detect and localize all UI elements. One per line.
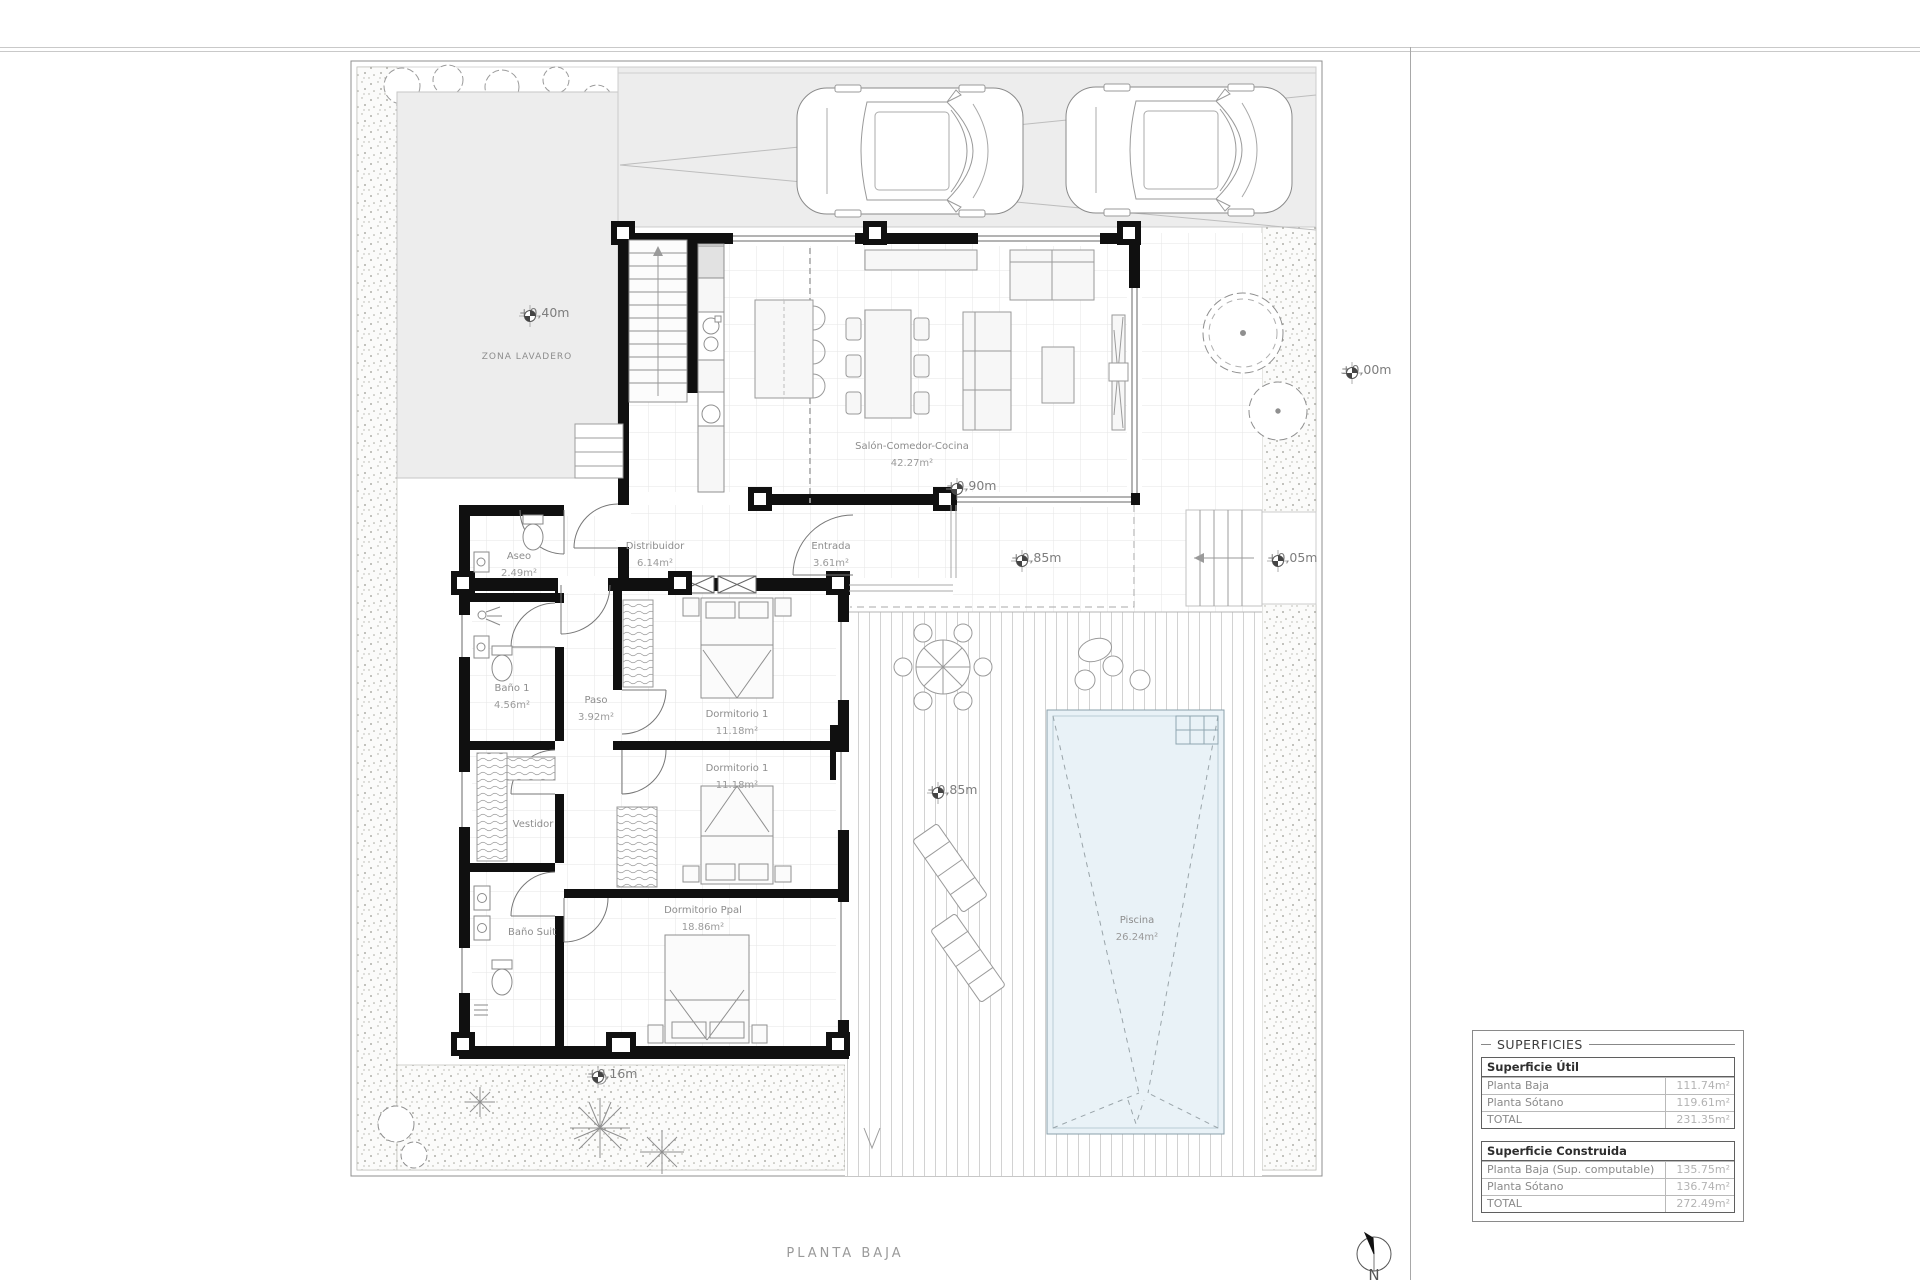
surfaces-title-text: SUPERFICIES [1497, 1037, 1583, 1052]
surfaces-panel: SUPERFICIES Superficie Útil Planta Baja … [1472, 1030, 1744, 1222]
level-icon [1341, 362, 1363, 384]
table-row: Planta Sótano 136.74m² [1482, 1178, 1734, 1195]
table-header: Superficie Construida [1482, 1142, 1734, 1161]
bed-principal [648, 935, 767, 1043]
room-label-zona-lavadero: ZONA LAVADERO [482, 352, 573, 362]
carport [618, 67, 1316, 230]
north-label: N [1368, 1266, 1379, 1280]
car-1 [797, 85, 1023, 217]
room-label-paso: Paso3.92m² [578, 692, 614, 726]
room-label-piscina: Piscina26.24m² [1116, 912, 1158, 946]
level-marker-salon: +0,90m [946, 478, 996, 493]
floor-plan-sheet: Salón-Comedor-Cocina42.27m² Distribuidor… [0, 0, 1920, 1280]
room-label-dormitorio-1: Dormitorio 111.18m² [706, 706, 769, 740]
level-icon [946, 478, 968, 500]
level-marker-deck: +0,85m [927, 782, 977, 797]
room-label-entrada: Entrada3.61m² [811, 538, 850, 572]
room-label-dormitorio-2: Dormitorio 111.18m² [706, 760, 769, 794]
room-label-vestidor: Vestidor [513, 816, 554, 833]
rule [1589, 1044, 1735, 1045]
room-label-bano-suit: Baño Suit [508, 924, 556, 941]
table-row: Planta Baja 111.74m² [1482, 1077, 1734, 1094]
level-icon [587, 1066, 609, 1088]
level-marker-exterior: ±0,00m [1341, 362, 1391, 377]
staircase [629, 240, 687, 402]
table-header: Superficie Útil [1482, 1058, 1734, 1077]
exterior-step [575, 424, 623, 478]
level-marker-acceso: +0,05m [1267, 550, 1317, 565]
zona-lavadero-area [397, 92, 618, 478]
level-marker-terraza: +0,85m [1011, 550, 1061, 565]
room-label-salon: Salón-Comedor-Cocina42.27m² [855, 438, 969, 472]
rule [1481, 1044, 1491, 1045]
dining-set [846, 310, 929, 418]
table-row-total: TOTAL 272.49m² [1482, 1195, 1734, 1212]
level-icon [1011, 550, 1033, 572]
room-label-distribuidor: Distribuidor6.14m² [626, 538, 685, 572]
level-icon [927, 782, 949, 804]
level-icon [1267, 550, 1289, 572]
level-marker-lavadero: +0,40m [519, 305, 569, 320]
table-row: Planta Baja (Sup. computable) 135.75m² [1482, 1161, 1734, 1178]
room-label-dormitorio-ppal: Dormitorio Ppal18.86m² [664, 902, 742, 936]
table-row: Planta Sótano 119.61m² [1482, 1094, 1734, 1111]
room-label-aseo: Aseo2.49m² [501, 548, 537, 582]
car-2 [1066, 84, 1292, 216]
room-label-bano1: Baño 14.56m² [494, 680, 530, 714]
level-icon [519, 305, 541, 327]
table-row-total: TOTAL 231.35m² [1482, 1111, 1734, 1128]
level-marker-jardin: +0,16m [587, 1066, 637, 1081]
page-title: PLANTA BAJA [786, 1246, 903, 1261]
superficie-construida-table: Superficie Construida Planta Baja (Sup. … [1481, 1141, 1735, 1213]
superficie-util-table: Superficie Útil Planta Baja 111.74m² Pla… [1481, 1057, 1735, 1129]
surfaces-panel-title: SUPERFICIES [1481, 1035, 1735, 1053]
kitchen [698, 244, 724, 492]
